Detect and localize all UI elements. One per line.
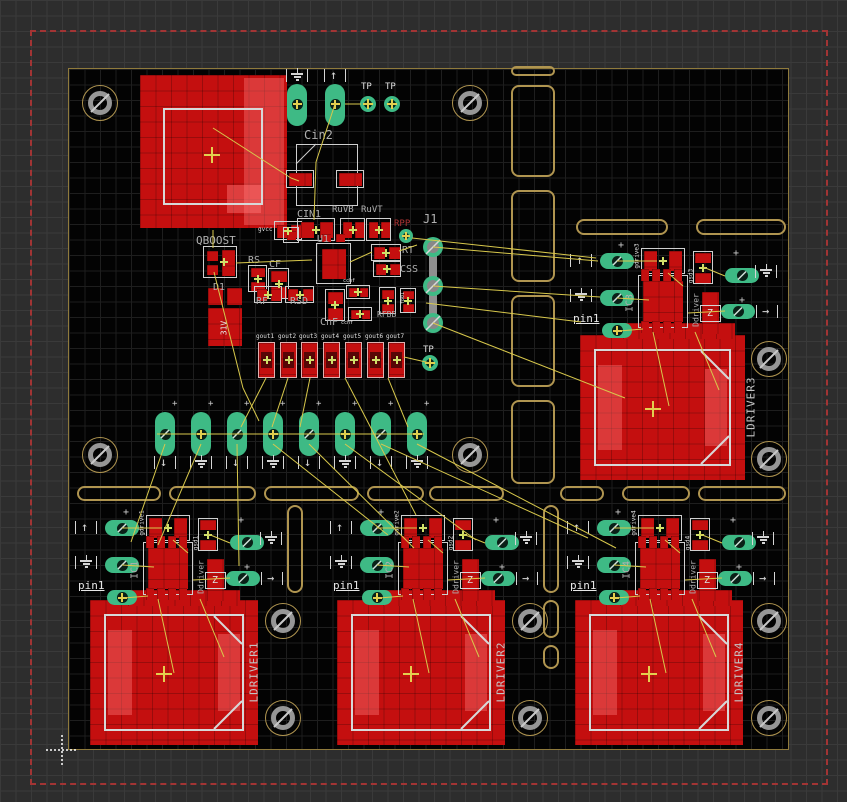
ic-pad[interactable]: [179, 588, 187, 600]
ground-symbol: [78, 555, 94, 570]
ic-pad[interactable]: [412, 536, 420, 548]
cross-mark: [287, 227, 289, 235]
ic-pad[interactable]: [674, 269, 682, 281]
mounting-hole-ring: [757, 447, 781, 471]
milling-outline[interactable]: [169, 486, 256, 501]
smd-pad[interactable]: [455, 540, 471, 550]
smd-pad[interactable]: [640, 548, 680, 589]
net-label: gdrive3: [634, 243, 641, 268]
milling-outline[interactable]: [429, 486, 504, 501]
cross-mark: [315, 226, 317, 234]
milling-outline[interactable]: [511, 295, 555, 387]
cross-mark: [387, 297, 389, 305]
ref-label-rf: RF: [256, 296, 268, 307]
ground-symbol: [337, 455, 353, 470]
diode-outline: Z: [205, 572, 226, 589]
mounting-hole-ring: [458, 91, 482, 115]
smd-pad[interactable]: [404, 518, 417, 538]
cross-mark: [357, 288, 359, 296]
ic-pad[interactable]: [179, 536, 187, 548]
pad-hole: [372, 560, 383, 571]
ref-label-rsd: RSD: [290, 296, 308, 307]
arrow-symbol: ↑: [77, 520, 95, 535]
plus-mark: +: [280, 399, 285, 409]
arrow-symbol: →: [758, 304, 776, 319]
plus-mark: +: [316, 399, 321, 409]
ic-pad[interactable]: [671, 536, 679, 548]
mounting-hole-ring: [757, 609, 781, 633]
cross-mark: [648, 666, 650, 682]
d1-pad[interactable]: [227, 288, 242, 305]
plus-mark: +: [730, 515, 736, 526]
arrow-symbol: ↑: [326, 68, 344, 83]
pad-hole: [238, 573, 249, 584]
cross-mark: [422, 524, 424, 532]
smd-pad[interactable]: [403, 304, 414, 312]
pad-outline: [351, 614, 491, 731]
pad-hole: [612, 293, 623, 304]
ic-pad[interactable]: [671, 588, 679, 600]
plus-mark: +: [123, 507, 129, 518]
cross-mark: [416, 430, 418, 439]
pad-hole: [427, 317, 439, 329]
cross-mark: [211, 147, 213, 163]
smd-pad[interactable]: [174, 518, 187, 538]
u1-pad[interactable]: [336, 234, 345, 242]
ic-pad[interactable]: [674, 321, 682, 333]
net-label-gout2: gout2: [278, 333, 296, 340]
cross-mark: [662, 257, 664, 265]
milling-outline[interactable]: [622, 486, 690, 501]
ref-label-ldriver3: LDRIVER3: [745, 377, 758, 438]
cross-mark: [207, 531, 209, 539]
cross-mark: [167, 524, 169, 532]
ic-pad[interactable]: [663, 269, 671, 281]
milling-outline[interactable]: [287, 505, 303, 593]
diode-symbol: Z: [212, 575, 218, 586]
smd-pad[interactable]: [692, 520, 708, 530]
net-label: gsd2: [448, 536, 455, 550]
cin2-pad[interactable]: [286, 170, 314, 188]
cross-mark: [702, 264, 704, 272]
cross-mark: [613, 593, 615, 602]
cross-mark: [429, 358, 431, 368]
ref-label-ic3: IC3: [625, 294, 636, 312]
ic-pad[interactable]: [641, 269, 649, 281]
ref-label-qboost: QBOOST: [196, 234, 236, 247]
cross-mark: [278, 280, 280, 288]
ic-pad[interactable]: [638, 536, 646, 548]
ref-label-d1: D1: [213, 282, 225, 293]
pad-hole: [427, 241, 439, 253]
cross-mark: [266, 356, 268, 364]
tp-label: TP: [423, 345, 434, 355]
milling-outline[interactable]: [264, 486, 359, 501]
cross-mark: [296, 100, 298, 109]
arrow-symbol: ↓: [372, 455, 390, 470]
ground-symbol: [333, 555, 349, 570]
smd-pad[interactable]: [641, 518, 654, 538]
pad-outline: [594, 349, 731, 466]
cross-mark: [200, 430, 202, 439]
milling-outline[interactable]: [367, 486, 424, 501]
pad-outline: [589, 614, 729, 731]
ic-pad[interactable]: [649, 536, 657, 548]
mounting-hole-ring: [271, 609, 295, 633]
arrow-symbol: →: [263, 571, 281, 586]
ddriver-label: Ddriver: [197, 560, 206, 594]
smd-pad[interactable]: [289, 173, 312, 186]
qboost-outline: [163, 108, 263, 205]
net-label: gdrive4: [631, 510, 638, 535]
cross-mark: [353, 356, 355, 364]
mounting-hole-ring: [757, 706, 781, 730]
ref-label-j1: J1: [423, 212, 437, 226]
net-label-cchf: cchf: [341, 320, 353, 326]
smd-pad[interactable]: [390, 264, 400, 275]
smd-pad[interactable]: [695, 273, 711, 283]
ic-pad[interactable]: [168, 588, 176, 600]
pad-hole: [242, 537, 253, 548]
cross-mark: [659, 524, 661, 532]
plus-mark: +: [244, 399, 249, 409]
cross-mark: [386, 265, 388, 273]
ic-pad[interactable]: [401, 588, 409, 600]
ref-label-ldriver4: LDRIVER4: [733, 642, 746, 703]
net-label-cchf: cchf: [343, 278, 355, 284]
arrow-symbol: ↑: [569, 520, 587, 535]
plus-mark: +: [736, 562, 742, 573]
tp-label: TP: [385, 82, 396, 92]
ic-pad[interactable]: [423, 536, 431, 548]
milling-outline[interactable]: [576, 219, 668, 235]
pin1-label: pin1: [333, 579, 360, 592]
pin1-label: pin1: [573, 312, 600, 325]
diode-symbol: Z: [467, 575, 473, 586]
ground-symbol: [193, 455, 209, 470]
ref-label-cin1: CIN1: [297, 209, 321, 220]
cross-mark: [334, 301, 336, 309]
net-label-gout3: gout3: [299, 333, 317, 340]
ref-label-ruvb: RuVB: [332, 205, 354, 215]
smd-pad[interactable]: [692, 540, 708, 550]
smd-pad[interactable]: [271, 289, 281, 301]
pad-hole: [733, 306, 744, 317]
pin1-label: pin1: [570, 579, 597, 592]
arrow-symbol: →: [755, 571, 773, 586]
ground-symbol: [265, 455, 281, 470]
ic-pad[interactable]: [412, 588, 420, 600]
net-label-gvcc: gvcc: [258, 226, 272, 233]
smd-pad[interactable]: [149, 518, 162, 538]
ground-symbol: [570, 555, 586, 570]
plus-mark: +: [352, 399, 357, 409]
ref-label-ldriver2: LDRIVER2: [495, 642, 508, 703]
cross-mark: [352, 226, 354, 234]
cross-mark: [272, 430, 274, 439]
mounting-hole-ring: [271, 706, 295, 730]
ground-symbol: [755, 531, 771, 546]
arrow-symbol: ↓: [228, 455, 246, 470]
mounting-hole-ring: [458, 443, 482, 467]
ref-label-css: CSS: [400, 264, 418, 275]
ground-symbol: [409, 455, 425, 470]
ref-label-rt: RT: [402, 245, 414, 256]
smd-pad[interactable]: [666, 518, 679, 538]
pad-hole: [160, 429, 171, 440]
ref-label-ldriver1: LDRIVER1: [248, 642, 261, 703]
mounting-hole-ring: [88, 443, 112, 467]
net-label-gout6: gout6: [365, 333, 383, 340]
ic-pad[interactable]: [157, 536, 165, 548]
net-label: gdrive2: [394, 510, 401, 535]
cross-mark: [616, 326, 618, 335]
ground-symbol: [518, 531, 534, 546]
smd-pad[interactable]: [389, 247, 400, 259]
ic-pad[interactable]: [638, 588, 646, 600]
diode-symbol: Z: [704, 575, 710, 586]
ic-pad[interactable]: [168, 536, 176, 548]
ic-pad[interactable]: [423, 588, 431, 600]
milling-outline[interactable]: [543, 505, 559, 593]
milling-outline[interactable]: [77, 486, 161, 501]
tp-label: TP: [361, 82, 372, 92]
net-label: gsd3: [688, 269, 695, 283]
cross-mark: [309, 356, 311, 364]
cross-mark: [331, 356, 333, 364]
arrow-symbol: ↓: [156, 455, 174, 470]
smd-pad[interactable]: [200, 520, 216, 530]
diode-outline: Z: [460, 572, 481, 589]
milling-outline[interactable]: [511, 190, 555, 282]
cross-mark: [699, 531, 701, 539]
smd-pad[interactable]: [643, 281, 683, 322]
ic-pad[interactable]: [663, 321, 671, 333]
cross-mark: [410, 666, 412, 682]
net-label: gsd1: [193, 536, 200, 550]
mounting-hole-ring: [518, 706, 542, 730]
ic-pad[interactable]: [146, 536, 154, 548]
smd-pad[interactable]: [200, 540, 216, 550]
ref-label-cf: CF: [269, 259, 281, 270]
smd-pad[interactable]: [339, 173, 362, 186]
cross-mark: [359, 310, 361, 318]
mounting-hole-ring: [518, 609, 542, 633]
plus-mark: +: [388, 399, 393, 409]
ground-symbol: [573, 288, 589, 303]
pad-hole: [372, 523, 383, 534]
pin1-label: pin1: [78, 579, 105, 592]
milling-outline[interactable]: [560, 486, 604, 501]
ref-label-ic2: IC2: [385, 561, 396, 579]
net-label-fb01: fb01: [400, 292, 406, 304]
cross-mark: [257, 275, 259, 283]
ddriver-label: Ddriver: [452, 560, 461, 594]
plus-mark: +: [208, 399, 213, 409]
ref-label-ruvt: RuVT: [361, 205, 383, 215]
ic-pad[interactable]: [660, 588, 668, 600]
cross-mark: [407, 297, 409, 305]
net-label: gsd4: [685, 536, 692, 550]
ground-symbol: [263, 531, 279, 546]
pad-hole: [117, 560, 128, 571]
plus-mark: +: [493, 515, 499, 526]
ground-symbol: [289, 68, 305, 83]
pcb-canvas: ↑TPTPTPgout1gout2gout3gout4gout5gout6gou…: [0, 0, 847, 802]
pad-hole: [730, 573, 741, 584]
ddriver-label: Ddriver: [692, 293, 701, 327]
cross-mark: [462, 531, 464, 539]
cross-mark: [652, 401, 654, 417]
ddriver-label: Ddriver: [689, 560, 698, 594]
plus-mark: +: [615, 507, 621, 518]
ic-pad[interactable]: [652, 321, 660, 333]
cross-mark: [391, 99, 393, 109]
cross-mark: [288, 356, 290, 364]
ic-pad[interactable]: [146, 588, 154, 600]
cross-mark: [121, 593, 123, 602]
ic-pad[interactable]: [649, 588, 657, 600]
ref-label-rfbb: RFBB: [377, 310, 396, 319]
smd-pad[interactable]: [429, 518, 442, 538]
arrow-symbol: →: [518, 571, 536, 586]
cross-mark: [405, 232, 407, 240]
milling-outline[interactable]: [543, 645, 559, 669]
cin2-pad[interactable]: [336, 170, 364, 188]
cross-mark: [367, 99, 369, 109]
mounting-hole-ring: [757, 347, 781, 371]
pad-hole: [609, 523, 620, 534]
ref-label-u1: U1: [317, 234, 329, 245]
plus-mark: +: [739, 295, 745, 306]
smd-pad[interactable]: [455, 520, 471, 530]
cross-mark: [375, 356, 377, 364]
milling-outline[interactable]: [696, 219, 786, 235]
cross-mark: [223, 258, 225, 266]
plus-mark: +: [424, 399, 429, 409]
ic-pad[interactable]: [660, 536, 668, 548]
smd-pad[interactable]: [644, 251, 657, 271]
milling-outline[interactable]: [511, 400, 555, 484]
milling-outline[interactable]: [511, 85, 555, 177]
cross-mark: [385, 249, 387, 257]
smd-pad[interactable]: [207, 251, 218, 261]
pad-hole: [737, 270, 748, 281]
smd-pad[interactable]: [669, 251, 682, 271]
pad-hole: [734, 537, 745, 548]
cross-mark: [344, 430, 346, 439]
pad-hole: [493, 573, 504, 584]
net-label-gout1: gout1: [256, 333, 274, 340]
net-label-gout5: gout5: [343, 333, 361, 340]
milling-outline[interactable]: [511, 66, 555, 76]
smd-pad[interactable]: [148, 548, 188, 589]
plus-mark: +: [244, 562, 250, 573]
ground-symbol: [758, 264, 774, 279]
pad-hole: [609, 560, 620, 571]
net-label: gdrive1: [139, 510, 146, 535]
net-label-gout7: gout7: [386, 333, 404, 340]
pad-hole: [304, 429, 315, 440]
arrow-symbol: ↑: [572, 253, 590, 268]
diode-symbol: Z: [707, 308, 713, 319]
mounting-hole-ring: [88, 91, 112, 115]
arrow-symbol: ↑: [332, 520, 350, 535]
plus-mark: +: [618, 240, 624, 251]
milling-outline[interactable]: [698, 486, 786, 501]
cross-mark: [378, 226, 380, 234]
cross-mark: [376, 593, 378, 602]
pad-outline: [104, 614, 244, 731]
plus-mark: +: [733, 248, 739, 259]
pad-hole: [497, 537, 508, 548]
ref-label-ic1: IC1: [130, 561, 141, 579]
pad-hole: [232, 429, 243, 440]
net-label-gout4: gout4: [321, 333, 339, 340]
pad-hole: [612, 256, 623, 267]
smd-pad[interactable]: [403, 548, 443, 589]
ref-label-cin2: Cin2: [304, 128, 333, 142]
pad-hole: [376, 429, 387, 440]
plus-mark: +: [378, 507, 384, 518]
ic-pad[interactable]: [652, 269, 660, 281]
ic-pad[interactable]: [641, 321, 649, 333]
ref-label-rpp: RPP: [394, 219, 410, 229]
diode-outline: Z: [700, 305, 721, 322]
pad-hole: [117, 523, 128, 534]
smd-pad[interactable]: [322, 249, 346, 279]
cross-mark: [396, 356, 398, 364]
ref-label-rs: RS: [248, 255, 260, 266]
cross-mark: [163, 666, 165, 682]
ref-label-ic4: IC4: [622, 561, 633, 579]
plus-mark: +: [499, 562, 505, 573]
ref-label-cnf: CnF: [320, 317, 338, 328]
ic-pad[interactable]: [434, 588, 442, 600]
smd-pad[interactable]: [207, 265, 218, 275]
pad-hole: [427, 280, 439, 292]
cross-mark: [334, 100, 336, 109]
ic-pad[interactable]: [157, 588, 165, 600]
arrow-symbol: ↓: [300, 455, 318, 470]
diode-outline: Z: [697, 572, 718, 589]
plus-mark: +: [238, 515, 244, 526]
ic-pad[interactable]: [434, 536, 442, 548]
net-label-31V: 31V: [220, 321, 229, 335]
plus-mark: +: [172, 399, 177, 409]
ic-pad[interactable]: [401, 536, 409, 548]
smd-pad[interactable]: [695, 253, 711, 263]
